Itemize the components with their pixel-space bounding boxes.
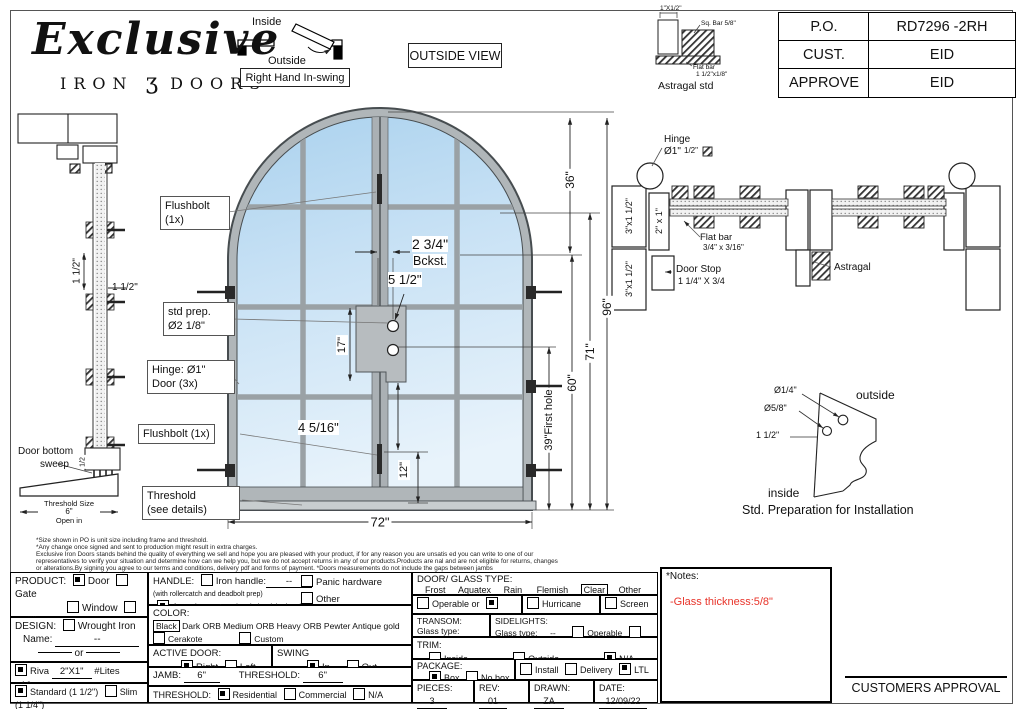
hinge-line1: Hinge: Ø1" <box>152 364 205 376</box>
threshold-open-label: Open in <box>38 516 100 525</box>
astragal-flatbar-label2: 1 1/2"x1/8" <box>696 71 727 78</box>
handle-iron-checkbox[interactable] <box>201 574 213 586</box>
approve-label-cell: APPROVE <box>778 68 870 98</box>
install-dim-fiveeighths: Ø5/8" <box>764 403 787 413</box>
rev-field[interactable]: 01 <box>479 695 507 709</box>
glass-or-label: or <box>472 599 480 609</box>
threshold-type-label: THRESHOLD: <box>153 690 211 700</box>
plan-astragal-label: Astragal <box>834 262 871 273</box>
rev-label: REV: <box>479 683 500 693</box>
color-label: COLOR: <box>153 608 189 619</box>
pieces-cell: PIECES: 3 <box>412 680 474 703</box>
color-dark-option[interactable]: Dark ORB <box>182 621 221 631</box>
install-inside-label: inside <box>768 486 799 500</box>
cust-label: CUST. <box>803 47 845 63</box>
design-name-field[interactable]: -- <box>55 633 139 647</box>
astragal-dim-top: 1"X1/2" <box>660 5 682 12</box>
dim-arch: 36" <box>563 169 577 191</box>
dim-bolt: 4 5/16" <box>298 420 339 435</box>
threshold-residential-checkbox[interactable] <box>218 688 230 700</box>
date-label: DATE: <box>599 683 625 693</box>
glass-operable-checkbox[interactable] <box>417 597 429 609</box>
logo-script: Exclusive <box>32 14 280 65</box>
package-section: PACKAGE: Box No box <box>412 659 515 680</box>
install-dim-quarter: Ø1/4" <box>774 385 797 395</box>
threshold-size-value: 6" <box>38 507 100 516</box>
pieces-field[interactable]: 3 <box>417 695 447 709</box>
dim-backset: 2 3/4" <box>412 236 448 252</box>
handle-section: HANDLE: Iron handle:-- Panic hardware (w… <box>148 572 412 605</box>
dim-height: 96" <box>600 296 614 318</box>
threshold-commercial-label: Commercial <box>299 690 347 700</box>
plan-hinge-dia: Ø1" <box>664 146 681 157</box>
screen-cell: Screen <box>600 595 658 614</box>
date-cell: DATE: 12/09/22 <box>594 680 658 703</box>
color-cerakote-label: Cerakote <box>168 634 203 644</box>
delivery-label: Delivery <box>580 665 613 675</box>
drawn-cell: DRAWN: ZA <box>529 680 594 703</box>
logo-ornament-glyph: ʒ <box>146 70 158 95</box>
design-section: DESIGN: Wrought Iron Name: -- or <box>10 617 148 662</box>
color-heavy-option[interactable]: Heavy ORB <box>277 621 322 631</box>
swing-inside-label: Inside <box>252 16 281 28</box>
lites-label: #Lites <box>94 666 119 677</box>
dim-backset-caption: Bckst. <box>413 254 447 268</box>
ltl-label: LTL <box>634 665 649 675</box>
po-label-cell: P.O. <box>778 12 870 42</box>
hinge-line2: Door (3x) <box>152 378 198 390</box>
plan-tube-label: 2" x 1" <box>654 206 664 236</box>
install-checkbox[interactable] <box>520 663 532 675</box>
glass-aquatex-option[interactable]: Aquatex <box>458 585 491 595</box>
notes-title: *Notes: <box>666 571 699 582</box>
sidelights-label: SIDELIGHTS: <box>495 616 548 626</box>
plan-jamb-a-label: 3"x1 1/2" <box>624 196 634 236</box>
glass-frost-option[interactable]: Frost <box>425 585 446 595</box>
approve-value-cell: EID <box>868 68 1016 98</box>
cust-value-cell: EID <box>868 40 1016 70</box>
install-dim-oneandhalf: 1 1/2" <box>756 430 779 440</box>
swing-caption: Right Hand In-swing <box>245 72 344 84</box>
product-gate-label: Gate <box>15 589 37 600</box>
swing-caption-box: Right Hand In-swing <box>240 68 350 87</box>
astragal-flatbar-label1: Flat bar <box>693 64 715 71</box>
color-antique-option[interactable]: Antique gold <box>352 621 399 631</box>
callout-flushbolt-top: Flushbolt (1x) <box>160 196 230 230</box>
callout-flushbolt-bottom: Flushbolt (1x) <box>138 424 215 444</box>
glass-flemish-option[interactable]: Flemish <box>537 585 569 595</box>
color-black-option[interactable]: Black <box>153 620 180 632</box>
delivery-section: Install Delivery LTL <box>515 659 658 680</box>
design-wrought-label: Wrought Iron <box>78 621 136 632</box>
callout-hinge: Hinge: Ø1" Door (3x) <box>147 360 235 394</box>
plan-doorstop-label1: Door Stop <box>676 264 721 275</box>
design-or-label: or <box>75 648 84 659</box>
color-section: COLOR: Black Dark ORB Medium ORB Heavy O… <box>148 605 412 645</box>
trim-section: TRIM: Inside -- Outside -- N/A <box>412 637 658 659</box>
plan-flatbar-label1: Flat bar <box>700 232 732 243</box>
glass-fixed-checkbox[interactable] <box>486 597 498 609</box>
plan-hinge-label: Hinge <box>664 134 690 145</box>
riva-size-field[interactable]: 2"X1" <box>52 665 92 679</box>
jamb-field[interactable]: 6" <box>184 669 220 683</box>
section-dim-vertical: 1 1/2" <box>72 256 83 286</box>
active-door-section: ACTIVE DOOR: Right Left <box>148 645 272 667</box>
plan-halfsq-label: 1/2" <box>684 146 698 155</box>
notes-section: *Notes: -Glass thickness:5/8" <box>660 567 832 703</box>
product-label: PRODUCT: <box>15 576 66 587</box>
plan-jamb-b-label: 3"x1 1/2" <box>624 259 634 299</box>
glass-type-section: DOOR/ GLASS TYPE: Frost Aquatex Rain Fle… <box>412 572 658 595</box>
signature-line[interactable] <box>845 676 1007 678</box>
screen-checkbox[interactable] <box>605 597 617 609</box>
cust-value: EID <box>930 47 954 63</box>
handle-other-label: Other <box>316 594 340 605</box>
plan-flatbar-label2: 3/4" x 3/16" <box>703 243 744 252</box>
frame-row: Standard (1 1/2") Slim (1 1/4") <box>10 683 148 703</box>
dim-width: 72" <box>368 515 391 530</box>
shop-drawing-sheet: P.O. RD7296 -2RH CUST. EID APPROVE EID E… <box>0 0 1024 709</box>
jamb-row: JAMB: 6" THRESHOLD: 6" <box>148 667 412 686</box>
approve-value: EID <box>930 75 954 91</box>
outside-view-box: OUTSIDE VIEW <box>408 43 502 68</box>
date-field[interactable]: 12/09/22 <box>599 695 647 709</box>
color-custom-checkbox[interactable] <box>239 632 251 644</box>
product-door-checkbox[interactable] <box>73 574 85 586</box>
riva-row: Riva 2"X1" #Lites 16 <box>10 662 148 683</box>
color-medium-option[interactable]: Medium ORB <box>223 621 274 631</box>
install-caption: Std. Preparation for Installation <box>742 503 914 517</box>
hurricane-cell: Hurricane film <box>522 595 600 614</box>
ltl-checkbox[interactable] <box>619 663 631 675</box>
sweep-label-1: Door bottom <box>18 446 73 457</box>
dim-bottom-bolt: 12" <box>398 460 410 480</box>
standard-checkbox[interactable] <box>15 685 27 697</box>
jamb-label: JAMB: <box>153 670 181 681</box>
slim-checkbox[interactable] <box>105 685 117 697</box>
glass-operable-cell: Operable or Fixed <box>412 595 522 614</box>
po-value: RD7296 -2RH <box>896 19 987 35</box>
callout-threshold: Threshold (see details) <box>142 486 240 520</box>
product-door-label: Door <box>88 576 110 587</box>
customers-approval-label: CUSTOMERS APPROVAL <box>845 681 1007 695</box>
drawn-label: DRAWN: <box>534 683 570 693</box>
astragal-caption: Astragal std <box>658 80 713 92</box>
cust-label-cell: CUST. <box>778 40 870 70</box>
po-value-cell: RD7296 -2RH <box>868 12 1016 42</box>
threshold-line1: Threshold <box>147 490 196 502</box>
package-label: PACKAGE: <box>417 661 462 671</box>
jamb-threshold-field[interactable]: 6" <box>303 669 343 683</box>
swing-section: SWING In Out <box>272 645 412 667</box>
product-gate-checkbox[interactable] <box>116 574 128 586</box>
swing-label: SWING <box>277 648 309 659</box>
design-label: DESIGN: <box>15 621 56 632</box>
std-prep-line1: std prep. <box>168 306 211 318</box>
dim-first-hole: 39"First hole <box>543 387 555 452</box>
product-window-label: Window <box>82 603 118 614</box>
approve-label: APPROVE <box>789 75 859 91</box>
dim-71: 71" <box>583 341 597 363</box>
design-wrought-checkbox[interactable] <box>63 619 75 631</box>
riva-label: Riva <box>30 666 49 677</box>
design-name-label: Name: <box>23 634 52 645</box>
product-section: PRODUCT: Door Gate Window Railling Other… <box>10 572 148 617</box>
rev-cell: REV: 01 <box>474 680 529 703</box>
std-prep-line2: Ø2 1/8" <box>168 320 205 332</box>
dim-bore-span: 17" <box>336 335 348 355</box>
sweep-label-2: sweep <box>40 459 69 470</box>
threshold-na-label: N/A <box>368 690 383 700</box>
threshold-line2: (see details) <box>147 504 207 516</box>
threshold-residential-label: Residential <box>233 690 278 700</box>
handle-panic-label: Panic hardware <box>316 577 382 588</box>
install-outside-label: outside <box>856 388 895 402</box>
handle-iron-note: (with rollercatch and deadbolt prep) <box>153 591 263 598</box>
handle-other-checkbox[interactable] <box>301 592 313 604</box>
threshold-row: THRESHOLD: Residential Commercial N/A <box>148 686 412 703</box>
outside-view-label: OUTSIDE VIEW <box>410 49 501 63</box>
install-label: Install <box>535 665 559 675</box>
trim-label: TRIM: <box>417 640 442 650</box>
logo-word-iron: IRON <box>60 74 133 93</box>
transom-label: TRANSOM: <box>417 616 462 626</box>
swing-outside-label: Outside <box>268 55 306 67</box>
color-pewter-option[interactable]: Pewter <box>324 621 350 631</box>
standard-label: Standard (1 1/2") <box>30 687 98 697</box>
glass-thickness-note: -Glass thickness:5/8" <box>670 596 773 608</box>
glass-other-option[interactable]: Other <box>619 585 642 595</box>
hurricane-checkbox[interactable] <box>527 597 539 609</box>
dim-60: 60" <box>565 372 579 394</box>
flushbolt-top-line2: (1x) <box>165 214 184 226</box>
riva-checkbox[interactable] <box>15 664 27 676</box>
pieces-label: PIECES: <box>417 683 453 693</box>
transom-glass-label: Glass type: <box>417 626 460 636</box>
glass-type-label: DOOR/ GLASS TYPE: <box>417 574 512 585</box>
product-railing-checkbox[interactable] <box>124 601 136 613</box>
flushbolt-bottom-label: Flushbolt (1x) <box>143 428 210 440</box>
color-cerakote-checkbox[interactable] <box>153 632 165 644</box>
transom-section: TRANSOM: Glass type: -- <box>412 614 490 637</box>
po-label: P.O. <box>810 19 837 35</box>
sidelights-section: SIDELIGHTS: Glass type: -- Operable Fixe… <box>490 614 658 637</box>
delivery-checkbox[interactable] <box>565 663 577 675</box>
flushbolt-top-line1: Flushbolt <box>165 200 210 212</box>
drawn-field[interactable]: ZA <box>534 695 564 709</box>
product-window-checkbox[interactable] <box>67 601 79 613</box>
handle-iron-label: Iron handle: <box>216 576 266 587</box>
callout-std-prep: std prep. Ø2 1/8" <box>163 302 235 336</box>
plan-doorstop-label2: 1 1/4" X 3/4 <box>678 276 725 286</box>
threshold-commercial-checkbox[interactable] <box>284 688 296 700</box>
glass-operable-label: Operable <box>432 599 469 609</box>
astragal-sqbar-label: Sq. Bar 5/8" <box>701 20 736 27</box>
screen-label: Screen <box>620 599 649 609</box>
handle-label: HANDLE: <box>153 576 194 587</box>
jamb-threshold-label: THRESHOLD: <box>239 670 300 681</box>
dim-bore-top: 5 1/2" <box>388 272 422 287</box>
sweep-dim: 1/2 <box>80 455 87 469</box>
logo-subtitle: IRON ʒ DOORS <box>60 70 267 95</box>
handle-panic-checkbox[interactable] <box>301 575 313 587</box>
glass-rain-option[interactable]: Rain <box>504 585 523 595</box>
active-door-label: ACTIVE DOOR: <box>153 648 221 659</box>
section-dim-horizontal: 1 1/2" <box>112 282 138 293</box>
color-custom-label: Custom <box>254 634 283 644</box>
threshold-na-checkbox[interactable] <box>353 688 365 700</box>
